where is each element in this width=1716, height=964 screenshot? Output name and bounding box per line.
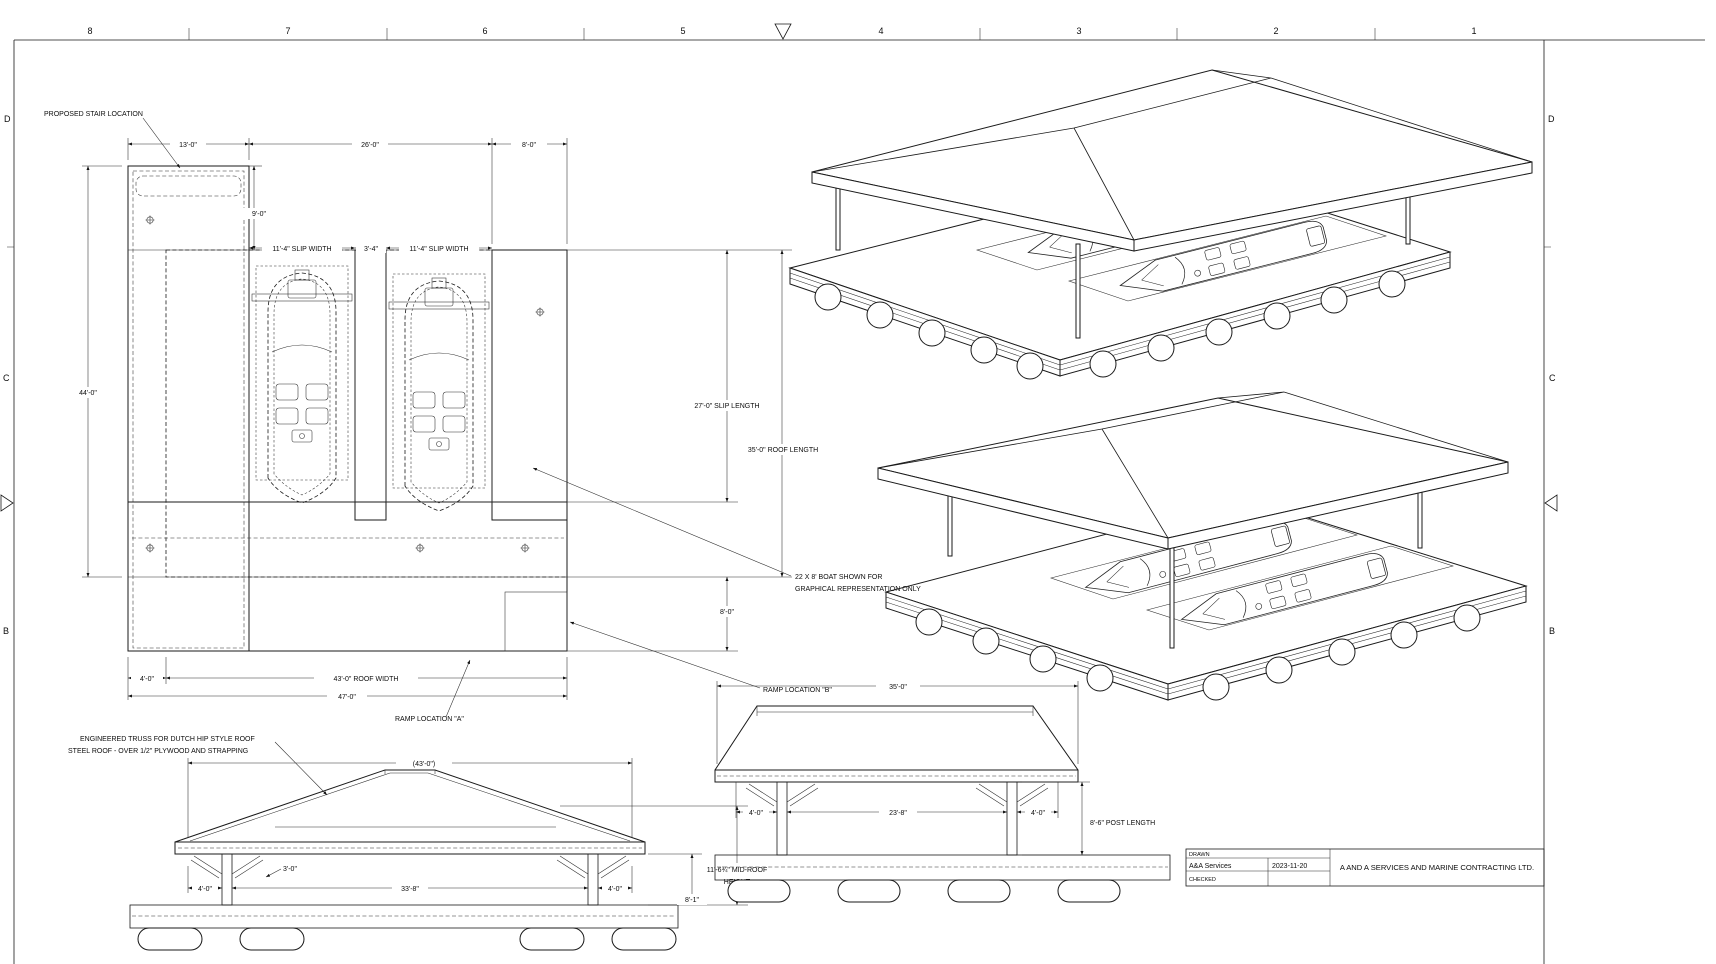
ramp-a-label: RAMP LOCATION "A" [395,716,464,723]
plan-lower-deck [128,502,567,651]
boat-note-line1: 22 X 8' BOAT SHOWN FOR [795,574,882,581]
zone-col-7: 7 [285,26,290,36]
plan-roof-outline [166,250,567,577]
iso1-post [1406,190,1410,244]
zone-row-b-left: B [3,626,9,636]
dim-roof-width: 43'-0" ROOF WIDTH [334,676,399,683]
zone-row-c-left: C [3,373,10,383]
zone-col-1: 1 [1471,26,1476,36]
dim-left-offset: 4'-0" [140,676,154,683]
zone-row-d-left: D [4,114,11,124]
side-elevation: 35'-0" 4'-0" 23'-8" 4'-0" 8'-6" POST LEN… [715,681,1170,902]
plan-boat-1 [256,266,348,503]
plan-slip-1 [249,250,355,502]
plan-center-finger [355,250,386,520]
cleat-icon [521,544,530,553]
dim-front-overhang-right: 4'-0" [608,886,622,893]
iso1-floats [815,271,1405,379]
front-dimensions: (43'-0") 3'-0" 4'-0" 33'-8" 4'-0" 8'-1" … [188,758,778,905]
truss-note-line2: STEEL ROOF - OVER 1/2" PLYWOOD AND STRAP… [68,748,248,755]
boat-note-line2: GRAPHICAL REPRESENTATION ONLY [795,586,921,593]
cleat-icon [146,216,155,225]
center-mark-right-icon [1545,495,1557,511]
iso1-roof [812,70,1532,251]
zone-col-5: 5 [680,26,685,36]
drawn-label: DRAWN [1189,852,1210,858]
front-deck [130,905,678,950]
dim-front-span: 33'-8" [401,886,419,893]
zone-col-8: 8 [87,26,92,36]
dim-side-overhang-right: 4'-0" [1031,810,1045,817]
drawing-sheet: 8 7 6 5 4 3 2 1 D C B D C B [0,0,1716,964]
float [728,880,790,902]
plan-mooring-bar-1 [252,294,352,301]
cleat-icon [536,308,545,317]
plan-view: 13'-0" 26'-0" 8'-0" 9'-0" 11'-4" SLIP WI… [44,111,921,723]
dim-post-length: 8'-6" POST LENGTH [1090,820,1155,827]
plan-mooring-bar-2 [389,302,489,309]
side-deck [715,855,1170,902]
dim-mid-roof-line1: 11'-6¾" MID-ROOF [707,867,767,874]
dim-side-span: 23'-8" [889,810,907,817]
plan-ramp-deck [505,592,567,651]
plan-dimensions: 13'-0" 26'-0" 8'-0" 9'-0" 11'-4" SLIP WI… [72,138,826,701]
float [948,880,1010,902]
truss-note-line1: ENGINEERED TRUSS FOR DUTCH HIP STYLE ROO… [80,736,255,743]
dim-slip-width-2: 11'-4" SLIP WIDTH [409,246,468,253]
float [240,928,304,950]
company-name: A AND A SERVICES AND MARINE CONTRACTING … [1340,863,1534,872]
dim-stair-depth: 9'-0" [252,211,266,218]
dim-deck-height: 8'-1" [685,897,699,904]
drawn-by: A&A Services [1189,863,1232,870]
cleat-icon [416,544,425,553]
iso2-post [1170,548,1174,648]
zone-row-d-right: D [1548,114,1555,124]
iso1-post [836,188,840,250]
dim-opening: 26'-0" [361,142,379,149]
iso-view-lower [878,392,1526,700]
drawn-date: 2023-11-20 [1272,863,1307,870]
iso2-post [1418,491,1422,548]
dim-stair-width: 13'-0" [179,142,197,149]
ramp-b-label: RAMP LOCATION "B" [763,687,832,694]
dim-roof-length: 35'-0" ROOF LENGTH [748,447,818,454]
float [612,928,676,950]
title-block: DRAWN A&A Services 2023-11-20 CHECKED A … [1186,849,1544,886]
zone-row-c-right: C [1549,373,1556,383]
iso1-post [1076,244,1080,338]
front-roof [175,770,645,854]
iso2-roof [878,392,1508,549]
cleat-icon [146,544,155,553]
dim-brace: 3'-0" [283,866,297,873]
iso-view-top [790,70,1532,379]
center-mark-left-icon [1,495,13,511]
float [520,928,584,950]
dim-front-overhang-left: 4'-0" [198,886,212,893]
front-posts [191,854,629,905]
cad-drawing: 8 7 6 5 4 3 2 1 D C B D C B [0,0,1716,964]
iso2-post [948,495,952,556]
checked-label: CHECKED [1189,877,1216,883]
dim-lower-walkway: 8'-0" [720,609,734,616]
center-mark-top-icon [775,24,791,39]
zone-row-b-right: B [1549,626,1555,636]
side-roof [715,706,1078,782]
stair-callout: PROPOSED STAIR LOCATION [44,111,143,118]
float [838,880,900,902]
dim-finger-width: 3'-4" [364,246,378,253]
plan-boat-2 [393,274,485,511]
plan-callouts: PROPOSED STAIR LOCATION 22 X 8' BOAT SHO… [44,111,921,723]
dim-walkway: 8'-0" [522,142,536,149]
zone-col-3: 3 [1076,26,1081,36]
dim-side-overhang-left: 4'-0" [749,810,763,817]
front-elevation: ENGINEERED TRUSS FOR DUTCH HIP STYLE ROO… [68,736,778,950]
dim-slip-length: 27'-0" SLIP LENGTH [694,403,759,410]
dim-dock-length: 44'-0" [79,390,97,397]
dim-front-roof-width: (43'-0") [413,761,436,768]
side-posts [746,782,1048,855]
side-dimensions: 35'-0" 4'-0" 23'-8" 4'-0" 8'-6" POST LEN… [717,681,1155,855]
plan-stair-landing [136,176,241,196]
zone-col-2: 2 [1273,26,1278,36]
dim-total-width: 47'-0" [338,694,356,701]
plan-finger-inset [133,171,244,648]
float [138,928,202,950]
plan-stair-finger [128,166,249,651]
zone-col-4: 4 [878,26,883,36]
dim-side-roof-length: 35'-0" [889,684,907,691]
zone-col-6: 6 [482,26,487,36]
float [1058,880,1120,902]
dim-slip-width-1: 11'-4" SLIP WIDTH [272,246,331,253]
plan-right-walkway [492,250,567,520]
